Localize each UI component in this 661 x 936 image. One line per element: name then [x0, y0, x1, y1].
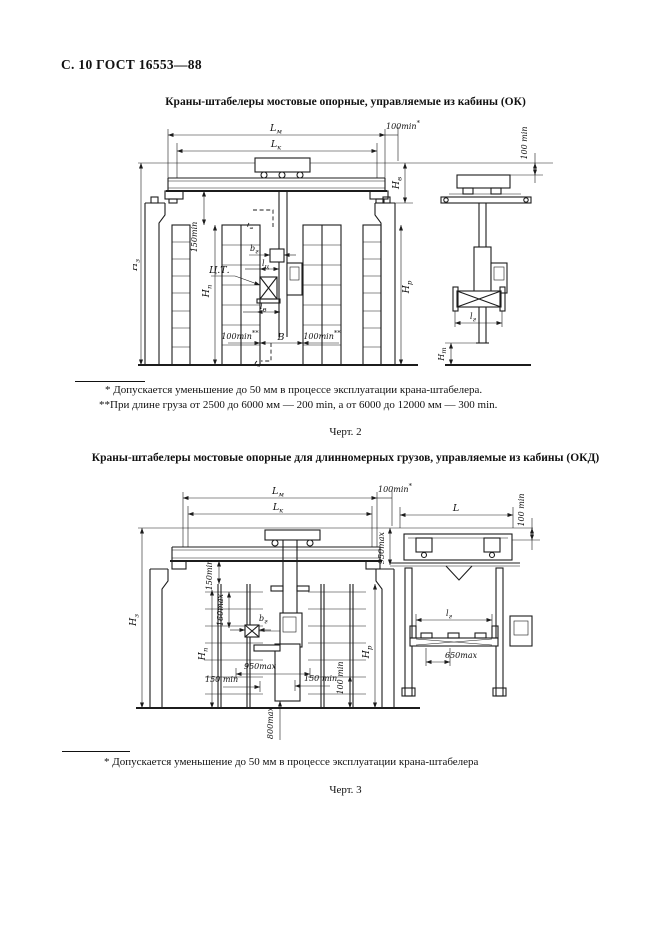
bridge-girder	[165, 178, 388, 203]
dim-label-150min-rot: 150min	[205, 560, 214, 591]
figure-chert-2: Lм Lк 100min* Нв Нз 150min Нп Нр Ц.Т. bг…	[133, 115, 558, 377]
dim-label-lk: Lк	[272, 502, 284, 515]
dim-label-hz: Нз	[128, 614, 141, 627]
dim-label-800max-rot: 800max	[266, 706, 275, 739]
operator-cab	[280, 613, 302, 647]
dim-label-ht: Нт	[437, 347, 448, 361]
figure2-footnote-1: * Допускается уменьшение до 50 мм в проц…	[105, 384, 482, 396]
figure3-title: Краны-штабелеры мостовые опорные для дли…	[30, 452, 661, 464]
dim-label-100min-left: 100min**	[221, 329, 259, 341]
page-header: С. 10 ГОСТ 16553—88	[61, 57, 202, 73]
building-wall-left	[150, 569, 168, 708]
figure2-caption: Черт. 2	[30, 426, 661, 438]
figure3-caption: Черт. 3	[30, 784, 661, 796]
load-box	[257, 277, 280, 303]
crane-mast	[271, 540, 309, 613]
rack-right-inner	[303, 225, 341, 365]
figure2-title: Краны-штабелеры мостовые опорные, управл…	[30, 96, 661, 108]
chert3-front-view: Lм Lк 100min* 950max Нз 150min 160max Нп…	[128, 482, 533, 740]
dim-label-150min: 150min	[190, 222, 199, 253]
dim-label-bg: bг	[250, 244, 259, 256]
dim-label-hn: Нп	[197, 648, 210, 662]
dim-label-100min-rot: 100 min	[336, 661, 345, 694]
grab-box	[245, 625, 280, 637]
trolley	[255, 158, 310, 178]
document-page: С. 10 ГОСТ 16553—88 Краны-штабелеры мост…	[0, 0, 661, 936]
hook-lower-position-dashed	[255, 343, 271, 366]
bridge-girder	[170, 547, 382, 569]
cab-side	[510, 616, 532, 646]
dim-label-lg: lг	[470, 312, 477, 324]
building-wall-right	[376, 569, 394, 708]
v-brace	[446, 566, 472, 580]
building-wall-left	[145, 197, 165, 365]
dim-label-950max: 950max	[244, 662, 277, 671]
footnote-rule-1	[75, 381, 145, 382]
dim-label-hr: Нр	[361, 645, 374, 659]
dim-label-bg: bг	[259, 614, 268, 626]
building-wall-right	[375, 197, 395, 365]
dim-label-lm: Lм	[271, 486, 284, 499]
dim-label-hn: Нп	[201, 285, 214, 299]
label-center-of-gravity: Ц.Т.	[209, 265, 230, 276]
fork-carriage	[254, 644, 300, 701]
dim-label-lk: Lк	[270, 139, 282, 152]
dim-label-hz: Нз	[133, 259, 142, 272]
dim-label-160max-rot: 160max	[216, 593, 225, 626]
dim-label-150min-left: 150 min	[205, 675, 238, 684]
figure-chert-3: Lм Lк 100min* 950max Нз 150min 160max Нп…	[128, 480, 568, 748]
chert3-side-view: L 100 min	[390, 493, 540, 696]
chert2-front-view: Lм Lк 100min* Нв Нз 150min Нп Нр Ц.Т. bг…	[133, 119, 553, 366]
figure2-footnote-2: **При длине груза от 2500 до 6000 мм — 2…	[99, 399, 497, 411]
dim-label-100min-top: 100min*	[386, 119, 421, 131]
dim-label-100min-side: 100 min	[520, 126, 529, 159]
trolley	[265, 530, 320, 546]
load-platform-side	[453, 287, 505, 311]
dim-label-l: L	[452, 503, 459, 514]
chert2-side-view: 100 min	[437, 126, 543, 365]
rack-right-outer	[363, 225, 381, 365]
trolley-side	[441, 175, 531, 203]
crane-mast	[270, 191, 287, 337]
rack-left-outer	[172, 225, 190, 365]
dim-label-b-aisle: В	[277, 332, 285, 343]
operator-cab	[287, 263, 302, 295]
dim-label-950max-rot: 950max	[377, 531, 386, 564]
gantry-legs	[402, 568, 506, 696]
dim-label-150min-right: 150 min	[304, 674, 337, 683]
dim-label-lg: lг	[446, 609, 453, 621]
dim-label-100min-side: 100 min	[517, 493, 526, 526]
dim-label-lm: Lм	[269, 123, 282, 136]
dim-label-650max: 650max	[445, 651, 478, 660]
dim-label-hr: Нр	[401, 280, 414, 294]
dim-label-hv: Нв	[391, 177, 404, 190]
load-platform	[410, 626, 498, 646]
footnote-rule-2	[62, 751, 130, 752]
mast-side	[474, 203, 491, 343]
figure3-footnote-1: * Допускается уменьшение до 50 мм в проц…	[104, 756, 478, 768]
dim-label-100min-top: 100min*	[378, 482, 413, 494]
